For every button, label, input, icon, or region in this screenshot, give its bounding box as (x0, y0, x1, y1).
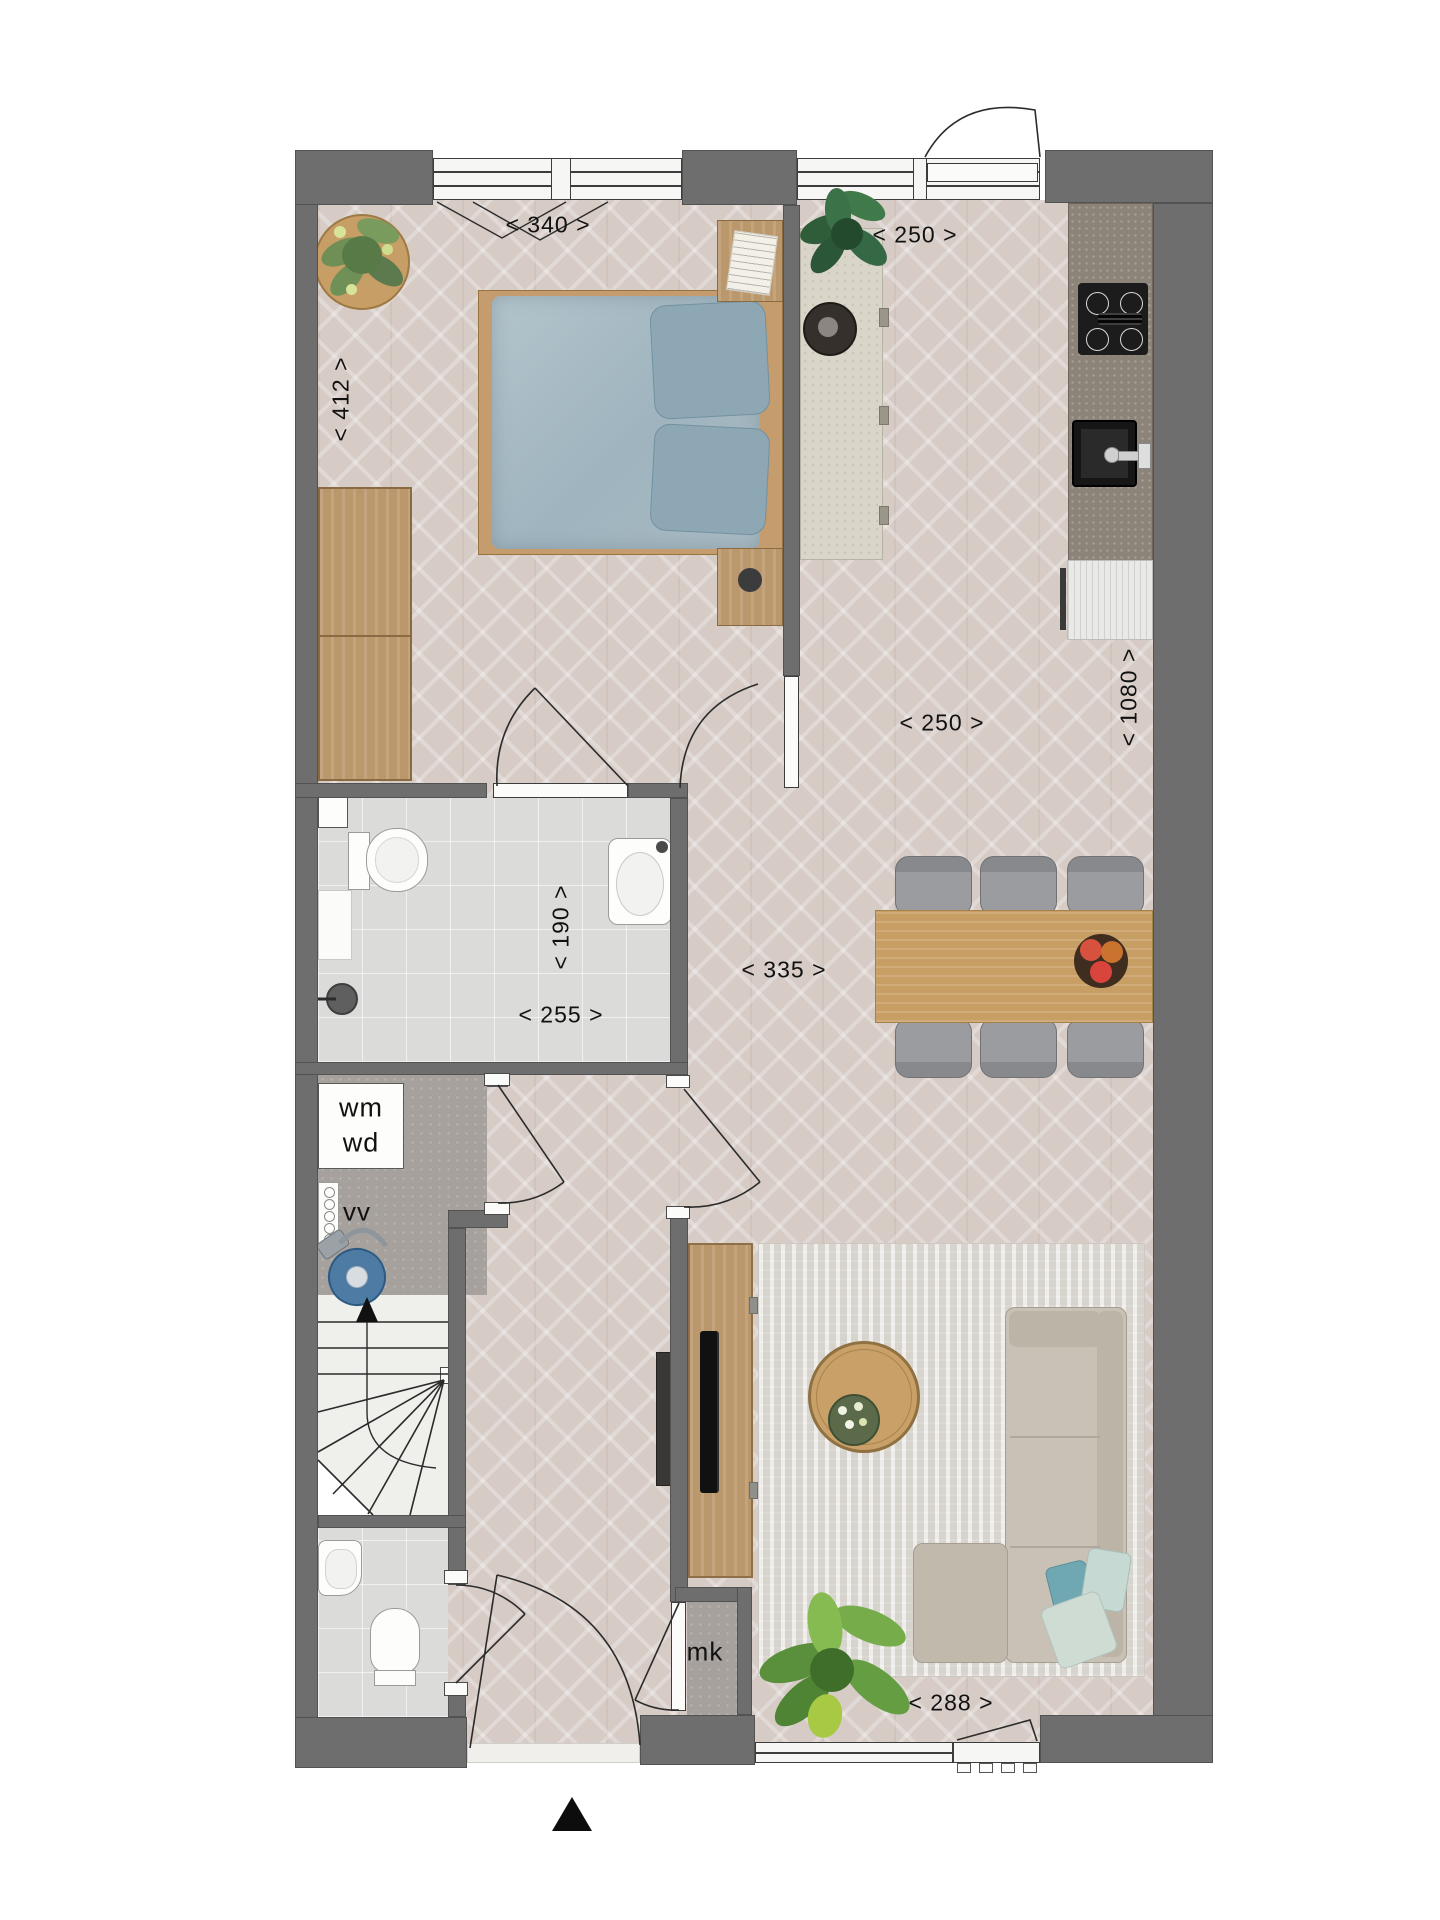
floor-plan: < 340 > < 412 > < 250 > < 1080 > < 250 >… (0, 0, 1440, 1920)
vacuum-hose (340, 1230, 386, 1246)
tech-door-swing (498, 1085, 564, 1182)
dim-bedroom-depth: < 412 > (328, 356, 355, 441)
label-meter-cupboard: mk (687, 1637, 724, 1668)
bedroom-door-swing (680, 684, 758, 788)
stair-up-arrow (356, 1297, 378, 1322)
label-washing-machine: wm (339, 1093, 383, 1124)
dim-living-width: < 250 > (899, 710, 984, 737)
toilet-door-swing (456, 1614, 525, 1683)
label-dryer: wd (343, 1128, 380, 1159)
terrace-door-leaf (957, 1720, 1037, 1741)
tech-door-swing (498, 1182, 564, 1203)
dim-bathroom-length: < 255 > (518, 1002, 603, 1029)
dim-facade-width: < 288 > (908, 1690, 993, 1717)
front-door-swing (497, 1575, 640, 1745)
living-door-swing (684, 1182, 760, 1207)
dim-bedroom-width: < 340 > (505, 212, 590, 239)
dim-hall-span: < 335 > (741, 957, 826, 984)
mk-door-swing (635, 1700, 679, 1710)
dim-kitchen-width: < 250 > (872, 222, 957, 249)
back-door-swing (925, 107, 1040, 157)
living-door-swing (684, 1089, 760, 1182)
bathroom-door-swing (535, 688, 628, 786)
mk-door-swing (635, 1603, 679, 1700)
dim-kitchen-run: < 1080 > (1116, 648, 1143, 747)
toilet-door-swing (456, 1585, 525, 1614)
stair-tread (318, 1322, 448, 1374)
stair-edge (318, 1460, 373, 1515)
bathroom-door-swing (497, 688, 535, 786)
stair-guide-line (367, 1318, 436, 1468)
plan-linework (0, 0, 1440, 1920)
north-arrow-icon (552, 1797, 592, 1831)
label-ventilation: vv (343, 1197, 371, 1228)
front-door-swing (470, 1575, 497, 1748)
dim-bathroom-width: < 190 > (548, 884, 575, 969)
